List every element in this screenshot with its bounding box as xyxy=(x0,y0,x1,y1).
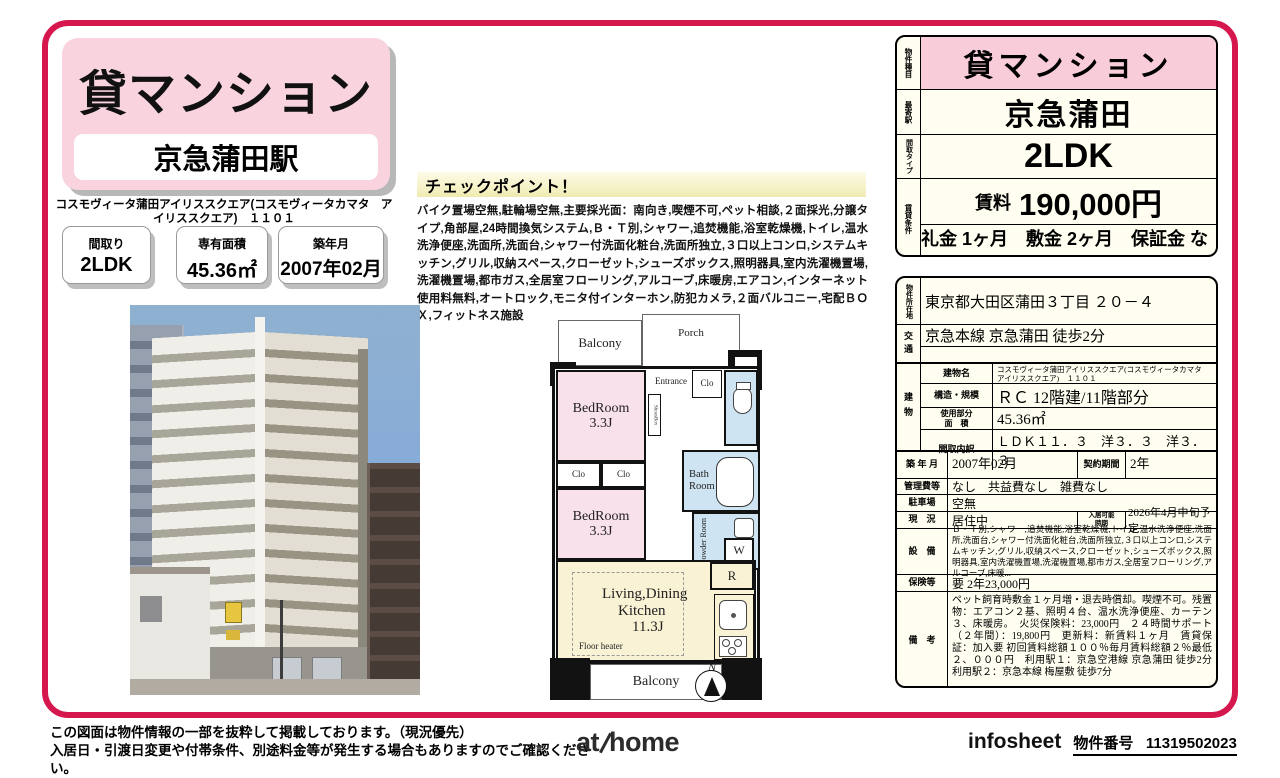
building-face-right xyxy=(260,332,368,679)
badge-area-label: 専有面積 xyxy=(177,235,267,252)
plan-bedroom-1: BedRoom 3.3J xyxy=(556,370,646,462)
building-name-value: コスモヴィータ蒲田アイリススクエア(コスモヴィータカマタ アイリススクエア) １… xyxy=(993,364,1216,383)
plan-floor-heater-label: Floor heater xyxy=(579,642,623,652)
summary-station-value: 京急蒲田 xyxy=(921,90,1216,134)
summary-table: 物件種目 貸マンション 最寄駅 京急蒲田 間取タイプ 2LDK 賃貸条件 賃料 … xyxy=(895,35,1218,257)
disclaimer-line-1: この図面は物件情報の一部を抜粋して掲載しております。（現況優先） xyxy=(50,724,590,742)
badge-built: 築年月 2007年02月 xyxy=(278,226,384,284)
plan-bath-label2: Room xyxy=(689,481,715,493)
badge-area-value: 45.36㎡ xyxy=(177,254,267,283)
building-photo xyxy=(130,305,420,695)
equipment-label: 設 備 xyxy=(897,529,948,574)
plan-bedroom2-size: 3.3J xyxy=(590,524,613,539)
plan-toilet xyxy=(724,370,758,446)
equipment-value: Ｂ・Ｔ別,シャワー,追焚機能,浴室乾燥機,トイレ,温水洗浄便座,洗面所,洗面台,… xyxy=(948,529,1216,574)
disclaimer-line-2: 入居日・引渡日変更や付帯条件、別途料金等が発生する場合もありますのでご確認くださ… xyxy=(50,742,590,778)
building-name-label: 建物名 xyxy=(921,364,993,383)
building-corner-edge xyxy=(255,317,265,677)
plan-closet-1: Clo xyxy=(556,462,601,488)
compass-needle-icon xyxy=(704,677,720,696)
access-empty-row xyxy=(921,347,1216,362)
plan-balcony-top-label: Balcony xyxy=(578,336,621,350)
summary-layout-value: 2LDK xyxy=(921,135,1216,178)
plan-closet-entry-label: Clo xyxy=(700,379,713,389)
property-type-box: 貸マンション 京急蒲田駅 xyxy=(62,38,390,190)
floor-heater-area: Floor heater xyxy=(572,572,684,656)
plan-closet1-label: Clo xyxy=(572,470,585,480)
property-number-label: 物件番号 xyxy=(1073,735,1133,752)
parking-label: 駐車場 xyxy=(897,495,948,511)
built-value: 2007年02月 xyxy=(948,452,1078,478)
stove-icon xyxy=(719,636,747,657)
footer-disclaimer: この図面は物件情報の一部を抜粋して掲載しております。（現況優先） 入居日・引渡日… xyxy=(50,724,590,778)
low-house xyxy=(130,567,210,695)
athome-logo-at: at xyxy=(576,727,599,758)
floor-area-value: 45.36㎡ xyxy=(993,408,1216,429)
notes-label: 備 考 xyxy=(897,592,948,688)
athome-logo: at home xyxy=(576,727,679,758)
notes-value: ペット飼育時敷金１ヶ月増・退去時償却。喫煙不可。残置物：エアコン２基、照明４台、… xyxy=(948,592,1216,688)
infosheet-page: 貸マンション 京急蒲田駅 コスモヴィータ蒲田アイリススクエア(コスモヴィータカマ… xyxy=(0,0,1280,761)
yellow-sign xyxy=(225,602,242,623)
checkpoint-bar: チェックポイント！ xyxy=(417,172,866,197)
bathtub-icon xyxy=(716,457,754,507)
structure-label: 構造・規模 xyxy=(921,384,993,407)
rent-label: 賃料 xyxy=(975,189,1011,215)
plan-shoesbox: ShoesBox xyxy=(648,394,661,436)
plan-closet-entry: Clo xyxy=(692,370,722,398)
plan-wall-block xyxy=(550,658,590,700)
plan-entrance-label: Entrance xyxy=(648,376,694,386)
badge-layout-label: 間取り xyxy=(63,235,150,252)
plan-bedroom1-size: 3.3J xyxy=(590,416,613,431)
plan-closet2-label: Clo xyxy=(617,470,630,480)
floor-area-label: 使用部分 面 積 xyxy=(921,408,993,429)
station-name: 京急蒲田駅 xyxy=(153,136,298,178)
kitchen-sink-icon xyxy=(719,600,747,630)
plan-bathroom: Bath Room xyxy=(682,450,760,512)
insurance-value: 要 2年23,000円 xyxy=(948,575,1216,591)
plan-powder-label: Powder Room xyxy=(700,518,709,564)
plan-bedroom1-label: BedRoom xyxy=(573,401,630,416)
address-label: 物件所在地 xyxy=(897,278,921,324)
badge-built-label: 築年月 xyxy=(279,235,383,252)
plan-balcony-bottom-label: Balcony xyxy=(633,674,680,689)
detail-table: 物件所在地 東京都大田区蒲田３丁目 ２０－４ 交通 京急本線 京急蒲田 徒歩2分… xyxy=(895,276,1218,688)
built-label: 築 年 月 xyxy=(897,452,948,478)
property-type-heading: 貸マンション xyxy=(62,38,390,124)
property-number-value: 11319502023 xyxy=(1146,735,1237,752)
toilet-icon xyxy=(733,388,752,414)
plan-fridge-space: R xyxy=(710,562,754,590)
fees-label: 管理費等 xyxy=(897,479,948,494)
badge-layout: 間取り 2LDK xyxy=(62,226,151,284)
checkpoint-title: チェックポイント！ xyxy=(417,173,578,197)
summary-station-label: 最寄駅 xyxy=(897,90,921,134)
summary-layout-label: 間取タイプ xyxy=(897,135,921,178)
contract-label: 契約期間 xyxy=(1078,452,1126,478)
athome-logo-home: home xyxy=(609,727,679,758)
structure-value: ＲＣ 12階建/11階部分 xyxy=(993,384,1216,407)
rent-value: 190,000円 xyxy=(1019,179,1162,224)
station-box: 京急蒲田駅 xyxy=(74,134,378,180)
badge-built-value: 2007年02月 xyxy=(279,254,383,281)
plan-bath-label1: Bath xyxy=(689,469,709,481)
plan-bedroom2-label: BedRoom xyxy=(573,509,630,524)
street xyxy=(130,679,420,695)
access-label: 交通 xyxy=(897,325,921,362)
fees-value: なし 共益費なし 雑費なし xyxy=(948,479,1216,494)
sink-icon xyxy=(734,518,754,538)
compass: N xyxy=(692,658,732,702)
address-value: 東京都大田区蒲田３丁目 ２０－４ xyxy=(921,278,1216,324)
yellow-sign-small xyxy=(226,630,240,640)
status-label: 現 況 xyxy=(897,512,948,528)
infosheet-word: infosheet xyxy=(968,730,1061,754)
plan-bedroom-2: BedRoom 3.3J xyxy=(556,488,646,560)
deposit-terms: 礼金 1ヶ月 敷金 2ヶ月 保証金 なし xyxy=(921,225,1216,257)
plan-shoesbox-label: ShoesBox xyxy=(652,405,658,425)
summary-type-label: 物件種目 xyxy=(897,37,921,89)
building-name-text: コスモヴィータ蒲田アイリススクエア(コスモヴィータカマタ アイリススクエア) １… xyxy=(52,198,396,226)
house-window xyxy=(140,596,162,622)
plan-kitchen-counter xyxy=(714,594,754,660)
summary-terms-label: 賃貸条件 xyxy=(897,179,921,257)
plan-balcony-top: Balcony xyxy=(558,320,642,366)
plan-porch-label: Porch xyxy=(678,327,704,339)
building-section-label: 建物 xyxy=(897,364,921,450)
contract-value: 2年 xyxy=(1126,452,1216,478)
neighbor-building-right xyxy=(367,463,420,695)
badge-area: 専有面積 45.36㎡ xyxy=(176,226,268,284)
summary-type-value: 貸マンション xyxy=(921,37,1216,89)
badge-layout-value: 2LDK xyxy=(63,254,150,277)
property-number: 物件番号 11319502023 xyxy=(1073,732,1236,756)
access-value: 京急本線 京急蒲田 徒歩2分 xyxy=(921,325,1216,347)
insurance-label: 保険等 xyxy=(897,575,948,591)
infosheet-block: infosheet 物件番号 11319502023 xyxy=(968,730,1237,756)
plan-washer-label: W xyxy=(733,544,744,557)
floor-plan: Balcony Porch MB PS BedRoom 3.3J Entranc… xyxy=(544,306,768,702)
plan-fridge-label: R xyxy=(728,569,737,583)
plan-closet-2: Clo xyxy=(601,462,646,488)
